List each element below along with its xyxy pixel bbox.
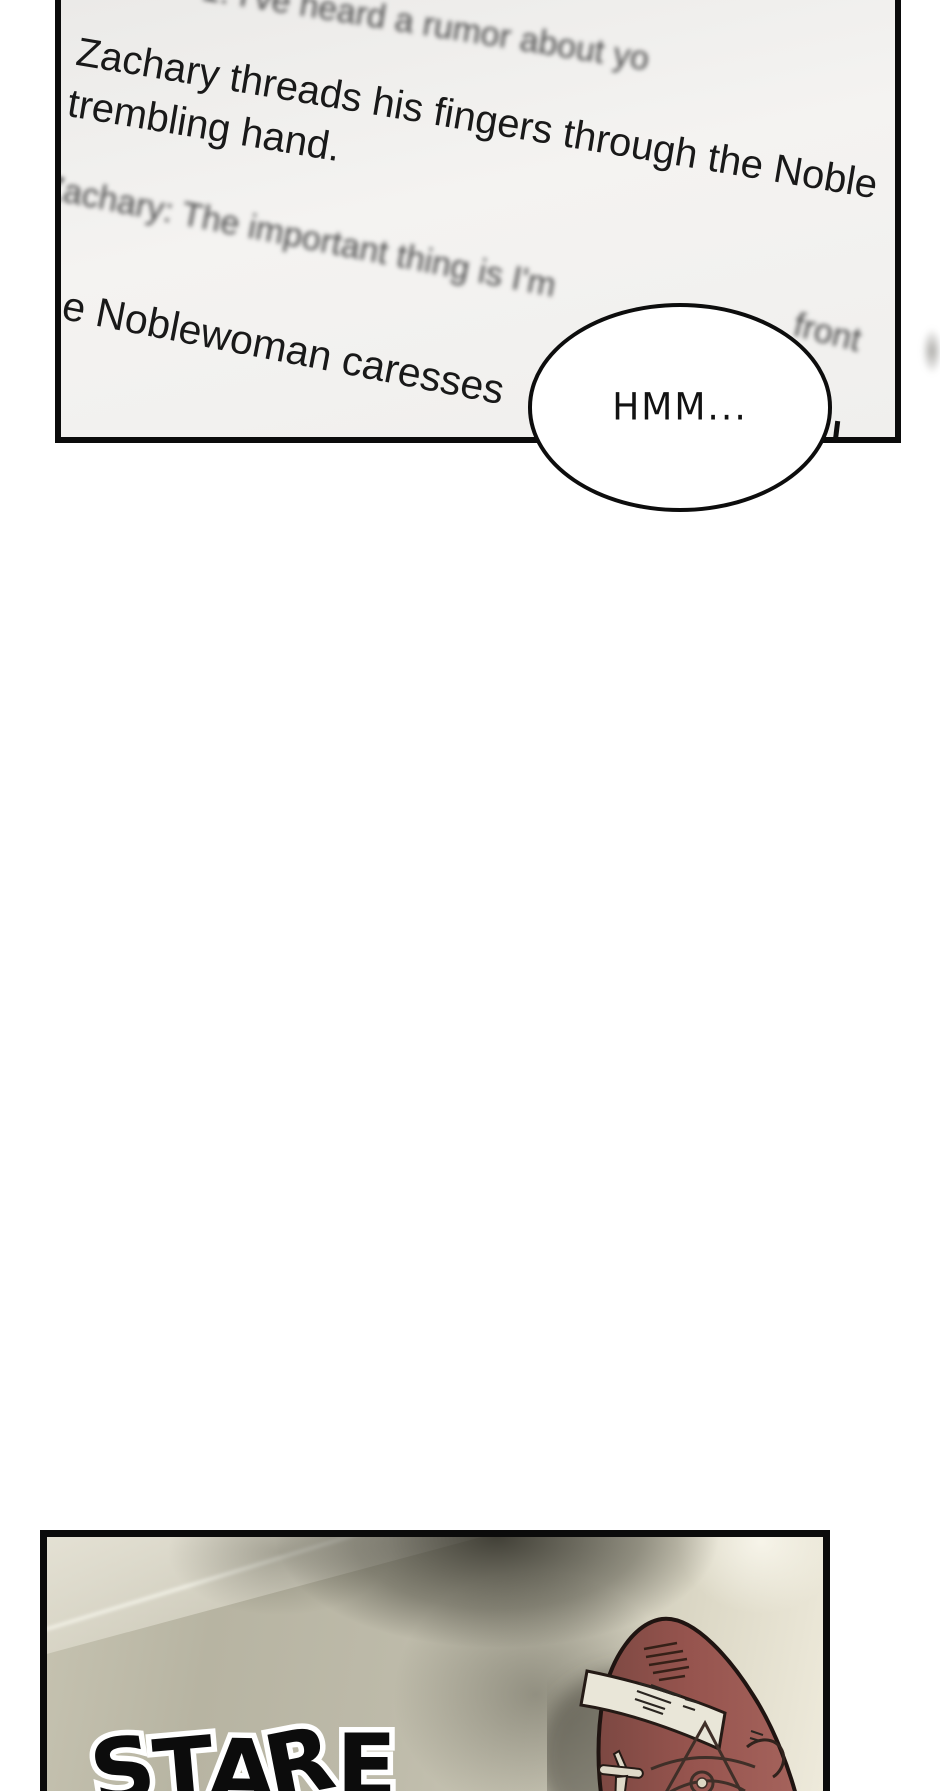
shoe-illustration [547,1607,827,1791]
sfx-stare: STARE [85,1706,469,1791]
panel-floor-shoe: STARE [40,1530,830,1791]
narration-noblewoman: he Noblewoman caresses [55,278,508,414]
sword-blade [615,1776,627,1791]
sfx-stare-text: STARE [85,1706,397,1791]
shoe-emblem-center [697,1778,707,1788]
speech-bubble-text: HMM... [612,386,748,429]
page-edge-smudge [922,328,940,374]
webtoon-page: 1: I've heard a rumor about yo Zachary t… [0,0,940,1791]
speech-bubble: HMM... [528,303,832,512]
